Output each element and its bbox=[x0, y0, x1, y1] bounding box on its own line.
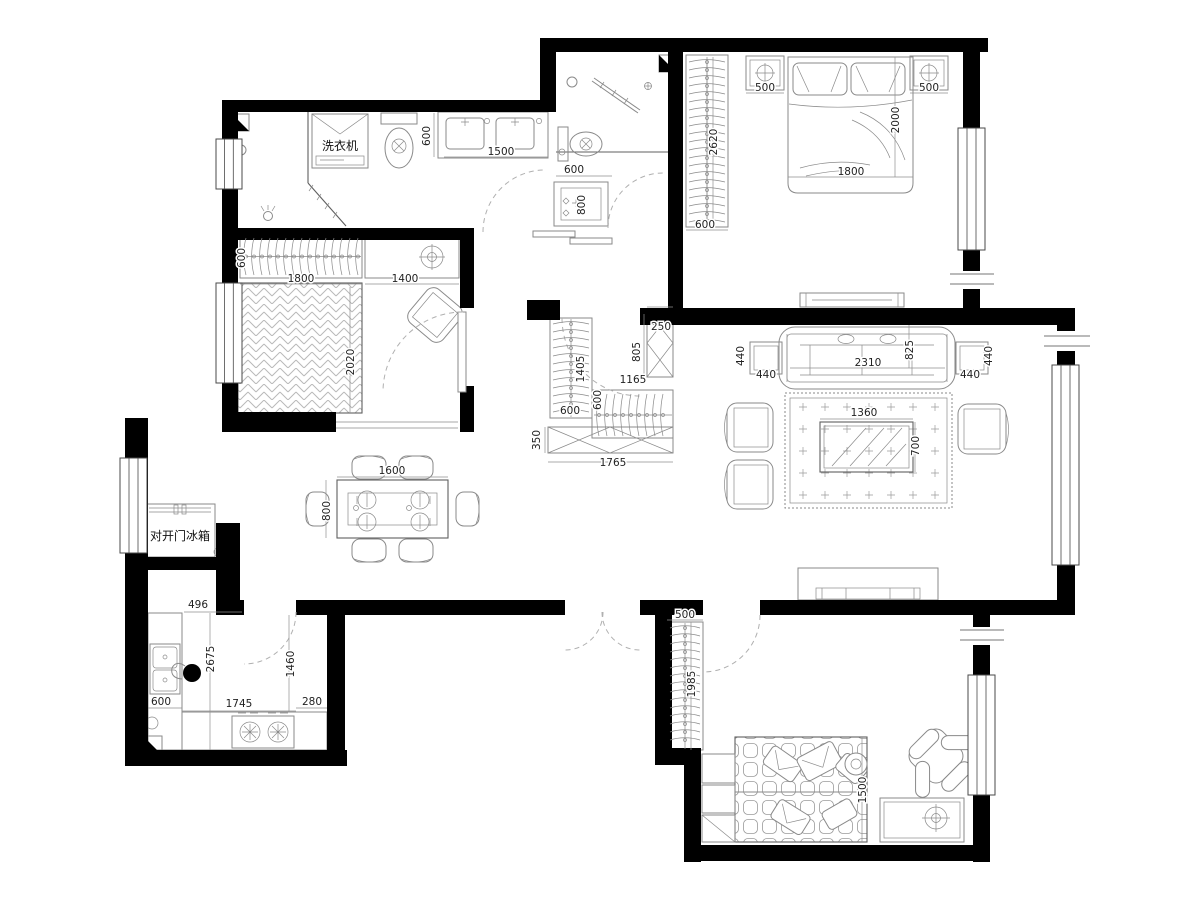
dimension-label: 1360 bbox=[851, 407, 878, 419]
second-bedroom bbox=[238, 235, 466, 428]
door-arc bbox=[383, 312, 466, 392]
dimension-label: 1165 bbox=[620, 374, 647, 386]
tatami-bed bbox=[735, 737, 868, 842]
desk bbox=[880, 798, 964, 842]
dimension-label: 250 bbox=[651, 321, 671, 333]
double-door-arcs bbox=[565, 612, 640, 650]
dimension-label: 1500 bbox=[857, 777, 869, 804]
dining-chair bbox=[352, 539, 386, 562]
dimension-label: 496 bbox=[188, 599, 208, 611]
floor-plan-page: 6001500600800262060050050020001800600180… bbox=[0, 0, 1200, 900]
dimension-label: 800 bbox=[321, 501, 333, 521]
shower-door bbox=[308, 183, 346, 226]
master-bedroom bbox=[746, 56, 948, 307]
dimension-label: 1460 bbox=[285, 651, 297, 678]
window bbox=[968, 675, 995, 795]
window bbox=[216, 283, 242, 383]
door-arc bbox=[703, 615, 760, 672]
bathroom-top-left bbox=[232, 112, 548, 226]
dimension-label: 1985 bbox=[686, 671, 698, 698]
kitchen-sink bbox=[150, 644, 201, 694]
bottom-right-bedroom bbox=[667, 622, 992, 842]
round-pillow bbox=[845, 753, 867, 775]
dining-chair bbox=[456, 492, 479, 526]
dimension-label: 500 bbox=[675, 609, 695, 621]
dimension-label: 600 bbox=[236, 248, 248, 268]
shower-glass bbox=[592, 78, 640, 113]
dimension-label: 600 bbox=[592, 390, 604, 410]
dimension-label: 2310 bbox=[855, 357, 882, 369]
dimension-label: 1800 bbox=[288, 273, 315, 285]
desk bbox=[365, 235, 459, 278]
floor-plan-canvas: 6001500600800262060050050020001800600180… bbox=[0, 0, 1200, 900]
shower-head-icon bbox=[261, 205, 275, 221]
dimension-label: 600 bbox=[564, 164, 584, 176]
dimension-label: 1500 bbox=[488, 146, 515, 158]
washing-machine-label: 洗衣机 bbox=[322, 138, 358, 153]
pillow bbox=[851, 63, 905, 95]
window bbox=[1052, 365, 1079, 565]
door-arc bbox=[608, 173, 663, 228]
dimension-label: 2000 bbox=[890, 107, 902, 134]
dimension-label: 1400 bbox=[392, 273, 419, 285]
armchair bbox=[958, 404, 1009, 454]
counter bbox=[182, 712, 327, 750]
drain-circle bbox=[567, 77, 577, 87]
toilet bbox=[558, 127, 602, 161]
dimension-label: 500 bbox=[919, 82, 939, 94]
dimension-label: 1600 bbox=[379, 465, 406, 477]
chair bbox=[404, 284, 466, 346]
dimension-label: 825 bbox=[904, 340, 916, 360]
faucet-icon bbox=[644, 82, 652, 90]
tv-console bbox=[800, 293, 904, 307]
stove bbox=[232, 713, 294, 748]
dimension-label: 280 bbox=[302, 696, 322, 708]
bed-steps bbox=[702, 754, 735, 842]
partition-line bbox=[336, 422, 458, 428]
dimension-label: 440 bbox=[735, 346, 747, 366]
armchair bbox=[725, 403, 774, 452]
door-arc bbox=[483, 170, 545, 232]
dimension-label: 2675 bbox=[205, 646, 217, 673]
fridge-label: 对开门冰箱 bbox=[150, 528, 210, 543]
dimension-label: 350 bbox=[531, 430, 543, 450]
dimension-label: 1765 bbox=[600, 457, 627, 469]
dimension-label: 440 bbox=[960, 369, 980, 381]
dimension-label: 440 bbox=[983, 346, 995, 366]
door-leaf bbox=[458, 312, 466, 392]
window bbox=[216, 139, 242, 189]
armchair bbox=[725, 460, 774, 509]
tv-console bbox=[798, 568, 938, 600]
dimension-label: 800 bbox=[576, 195, 588, 215]
dimension-label: 440 bbox=[756, 369, 776, 381]
dimension-label: 1405 bbox=[575, 356, 587, 383]
dimension-label: 1745 bbox=[226, 698, 253, 710]
dimension-label: 2620 bbox=[708, 129, 720, 156]
dimension-label: 600 bbox=[560, 405, 580, 417]
dimension-label: 2020 bbox=[345, 349, 357, 376]
toilet bbox=[381, 113, 417, 168]
dimension-label: 600 bbox=[695, 219, 715, 231]
dimension-label: 600 bbox=[151, 696, 171, 708]
dimension-label: 1800 bbox=[838, 166, 865, 178]
sliding-door bbox=[533, 231, 612, 244]
window bbox=[958, 128, 985, 250]
dimension-label: 500 bbox=[755, 82, 775, 94]
dimension-label: 600 bbox=[421, 126, 433, 146]
bed-herringbone bbox=[238, 283, 362, 413]
window bbox=[120, 458, 147, 553]
dining-chair bbox=[399, 539, 433, 562]
dimension-label: 805 bbox=[631, 342, 643, 362]
dimension-label: 700 bbox=[910, 436, 922, 456]
pillow bbox=[793, 63, 847, 95]
